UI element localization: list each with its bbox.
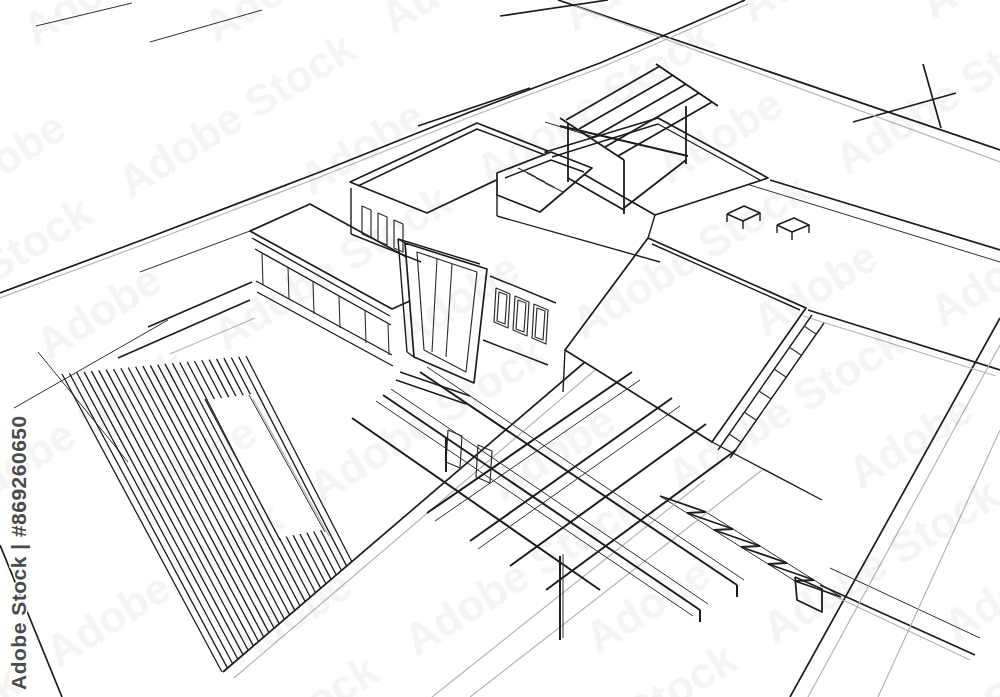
stairs-right-shape — [714, 529, 733, 530]
stairs-right-shape — [687, 512, 706, 513]
stairs-right-shape — [741, 546, 760, 547]
house-sketch-drawing: Adobe Stock Adobe Stock Adobe Stock | #8… — [0, 0, 1000, 697]
stairs-right-shape — [768, 563, 787, 564]
watermark-stock-id-text: Adobe Stock | #869260650 — [7, 415, 30, 690]
stock-image-preview: Adobe Stock Adobe Stock Adobe Stock | #8… — [0, 0, 1000, 697]
paper-background — [0, 0, 1000, 697]
